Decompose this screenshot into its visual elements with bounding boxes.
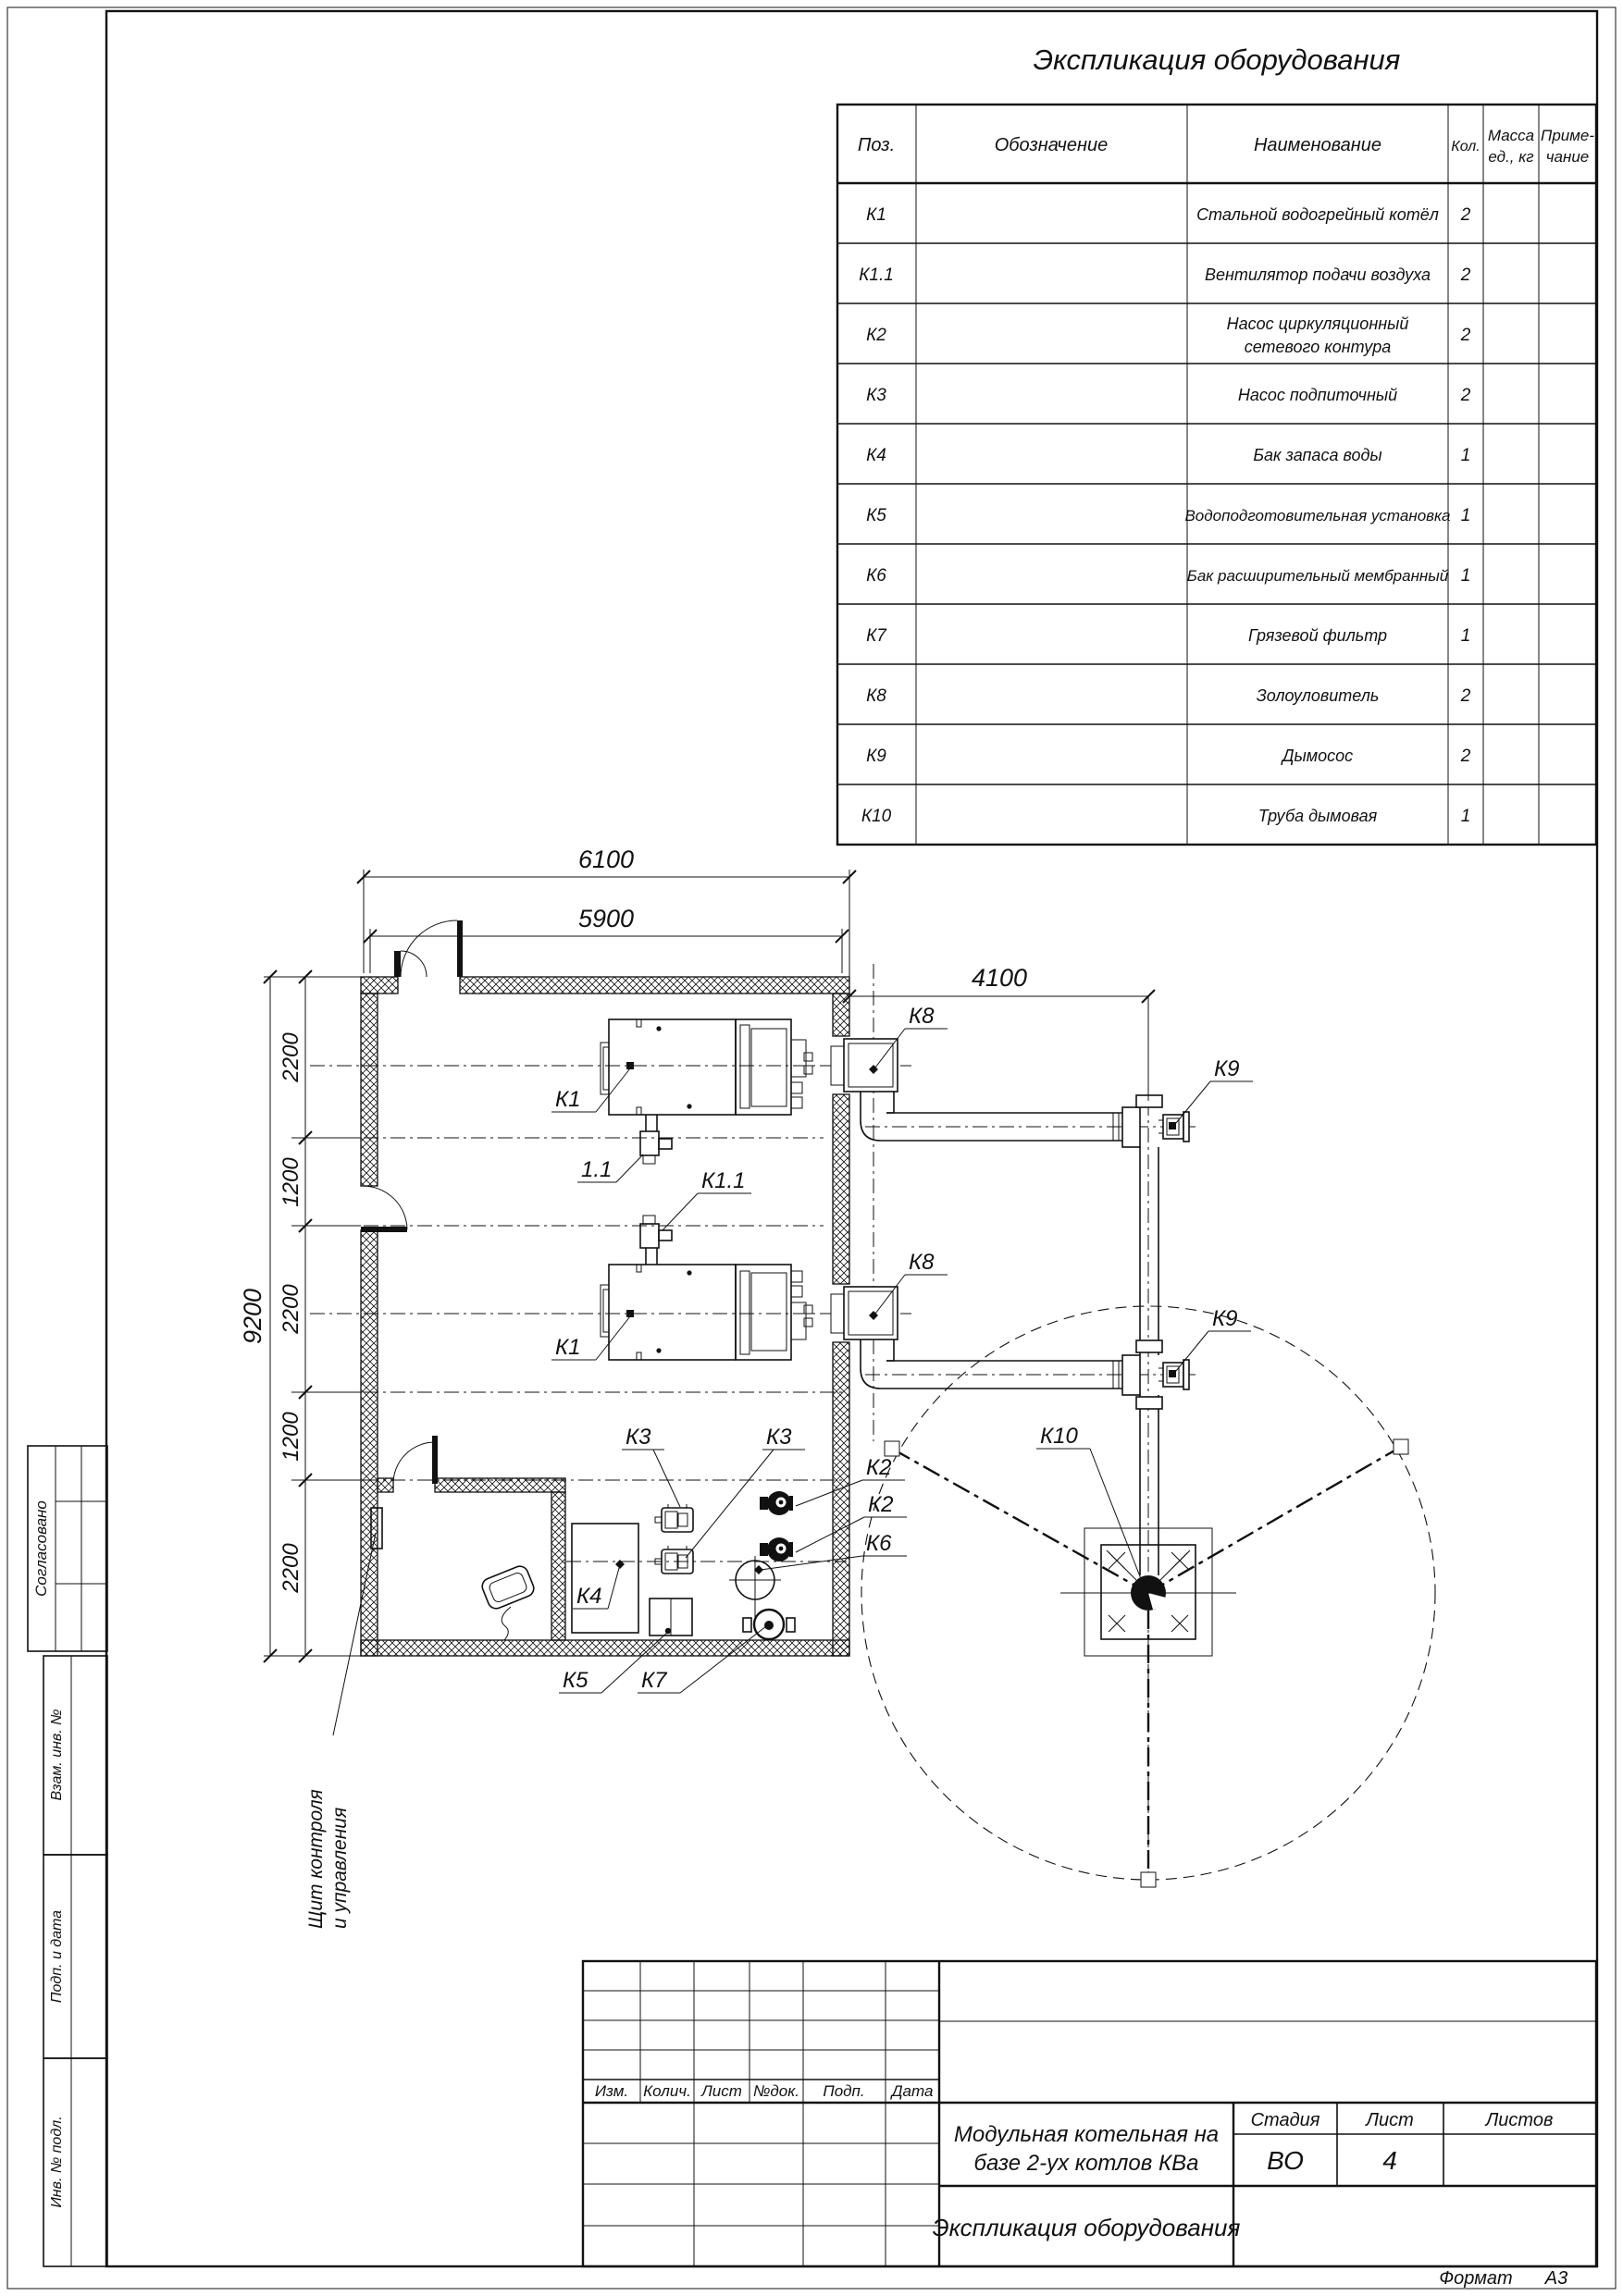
col-mass-2: ед., кг bbox=[1488, 148, 1533, 166]
row-qty: 1 bbox=[1461, 446, 1471, 465]
rev-col-ndok: №док. bbox=[753, 2082, 799, 2100]
equipment-table-title: Экспликация оборудования bbox=[1034, 43, 1401, 76]
labels: К1 К1 1.1 К1.1 К8 К8 bbox=[305, 1004, 1253, 1929]
vertical-flue-duct bbox=[1136, 1095, 1162, 1575]
label-k7: К7 bbox=[638, 1626, 766, 1693]
col-qty: Кол. bbox=[1451, 139, 1480, 154]
label-k4: К4 bbox=[573, 1560, 625, 1609]
rev-col-izm: Изм. bbox=[595, 2082, 628, 2100]
sheet-label: Лист bbox=[1364, 2110, 1414, 2130]
col-mass-1: Масса bbox=[1488, 127, 1534, 144]
sheet-value: 4 bbox=[1382, 2146, 1397, 2175]
pump-k2-1 bbox=[760, 1491, 793, 1515]
label-k1-2: К1 bbox=[551, 1310, 634, 1360]
row-qty: 2 bbox=[1460, 686, 1471, 706]
col-note-2: чание bbox=[1546, 148, 1590, 166]
label-text: К7 bbox=[641, 1668, 668, 1693]
row-qty: 1 bbox=[1461, 506, 1471, 525]
col-designation: Обозначение bbox=[995, 135, 1109, 155]
dim-5900: 5900 bbox=[578, 905, 634, 932]
label-text: К10 bbox=[1040, 1424, 1078, 1449]
dim-4100: 4100 bbox=[972, 964, 1027, 992]
label-text: К2 bbox=[866, 1455, 892, 1480]
equipment-table-header: Поз. Обозначение Наименование Кол. Масса… bbox=[858, 127, 1594, 166]
floor-plan: 6100 5900 4100 9200 2200 1200 2200 1200 … bbox=[239, 846, 1435, 1929]
row-qty: 2 bbox=[1460, 326, 1471, 345]
row-qty: 1 bbox=[1461, 807, 1471, 826]
row-name: Золоуловитель bbox=[1257, 686, 1380, 705]
label-text: К3 bbox=[766, 1425, 792, 1450]
axes bbox=[310, 964, 1236, 1872]
label-k1-1-fan: К1.1 bbox=[663, 1168, 751, 1230]
label-k3-1: К3 bbox=[622, 1425, 680, 1507]
label-k3-2: К3 bbox=[686, 1425, 805, 1558]
stamp-inv-label: Инв. № подл. bbox=[49, 2116, 65, 2207]
dim-9200: 9200 bbox=[239, 1289, 266, 1344]
row-name: Вентилятор подачи воздуха bbox=[1205, 265, 1431, 284]
row-pos: К8 bbox=[866, 686, 886, 706]
row-name: Дымосос bbox=[1281, 747, 1353, 765]
expansion-tank-k6 bbox=[729, 1556, 781, 1617]
sink bbox=[480, 1563, 537, 1611]
label-text: К8 bbox=[909, 1004, 935, 1029]
pump-k3-1 bbox=[655, 1504, 693, 1532]
label-text: 1.1 bbox=[581, 1157, 612, 1182]
row-qty: 2 bbox=[1460, 747, 1471, 766]
row-pos: К1 bbox=[866, 205, 886, 225]
dim-2200-3: 2200 bbox=[279, 1543, 304, 1594]
col-note-1: Приме- bbox=[1541, 127, 1594, 144]
row-qty: 2 bbox=[1460, 265, 1471, 285]
doc-title: Экспликация оборудования bbox=[933, 2214, 1241, 2241]
format-label: Формат bbox=[1439, 2268, 1512, 2289]
stamp-zam-label: Взам. инв. № bbox=[49, 1710, 65, 1801]
row-name: Насос циркуляционный bbox=[1227, 315, 1409, 333]
pump-k2-2 bbox=[760, 1537, 793, 1562]
rev-col-podp: Подп. bbox=[823, 2082, 864, 2100]
label-text: К8 bbox=[909, 1250, 935, 1275]
row-pos: К1.1 bbox=[859, 265, 894, 285]
row-name: Бак расширительный мембранный bbox=[1187, 567, 1449, 585]
label-text: К4 bbox=[576, 1584, 602, 1609]
row-pos: К5 bbox=[866, 506, 886, 525]
dim-2200-2: 2200 bbox=[279, 1284, 304, 1335]
dirt-filter-k7 bbox=[743, 1610, 795, 1639]
row-qty: 2 bbox=[1460, 205, 1471, 225]
project-name-line2: базе 2-ух котлов КВа bbox=[974, 2151, 1199, 2176]
format-value: А3 bbox=[1544, 2268, 1567, 2289]
rev-col-list: Лист bbox=[700, 2082, 742, 2100]
stamp-agreed-label: Согласовано bbox=[32, 1500, 50, 1597]
sheets-label: Листов bbox=[1484, 2110, 1554, 2130]
stamp-podp-label: Подп. и дата bbox=[49, 1910, 65, 2003]
rev-col-kol: Колич. bbox=[643, 2082, 691, 2100]
row-name: Насос подпиточный bbox=[1238, 386, 1397, 404]
label-text: Щит контроля bbox=[305, 1789, 327, 1929]
water-tank-k4 bbox=[572, 1524, 638, 1633]
dim-1200-1: 1200 bbox=[279, 1157, 304, 1207]
row-pos: К10 bbox=[861, 807, 892, 826]
flue-2 bbox=[831, 1287, 1189, 1395]
row-name-2: сетевого контура bbox=[1245, 338, 1392, 356]
col-pos: Поз. bbox=[858, 135, 895, 155]
equipment-table-rows: К1 Стальной водогрейный котёл 2 К1.1 Вен… bbox=[859, 205, 1471, 826]
pump-k3-2 bbox=[655, 1546, 693, 1574]
left-stamps: Согласовано Взам. инв. № Подп. и дата Ин… bbox=[28, 1446, 107, 2266]
title-block: Изм. Колич. Лист №док. Подп. Дата Модуль… bbox=[583, 1961, 1596, 2289]
label-k10: К10 bbox=[1036, 1424, 1145, 1588]
sink-drain bbox=[502, 1607, 511, 1640]
row-pos: К9 bbox=[866, 747, 886, 766]
dim-6100: 6100 bbox=[578, 846, 634, 873]
row-qty: 1 bbox=[1461, 566, 1471, 586]
label-text: К1 bbox=[555, 1087, 581, 1112]
label-text: К9 bbox=[1214, 1056, 1240, 1081]
dim-1200-2: 1200 bbox=[279, 1412, 304, 1462]
row-name: Бак запаса воды bbox=[1253, 446, 1381, 464]
row-pos: К3 bbox=[866, 386, 886, 405]
equipment-table: Экспликация оборудования Поз. Обозначени… bbox=[837, 43, 1596, 845]
row-name: Грязевой фильтр bbox=[1248, 626, 1387, 645]
row-qty: 2 bbox=[1460, 386, 1471, 405]
dim-2200-1: 2200 bbox=[279, 1032, 304, 1083]
row-name: Стальной водогрейный котёл bbox=[1196, 205, 1439, 224]
row-pos: К7 bbox=[866, 626, 887, 646]
drawing-canvas: Согласовано Взам. инв. № Подп. и дата Ин… bbox=[0, 0, 1623, 2296]
stage-value: ВО bbox=[1267, 2146, 1304, 2175]
rev-col-data: Дата bbox=[890, 2082, 934, 2100]
pumps-and-tanks bbox=[371, 1491, 795, 1640]
row-name: Водоподготовительная установка bbox=[1184, 507, 1450, 525]
row-pos: К2 bbox=[866, 326, 886, 345]
row-pos: К4 bbox=[866, 446, 886, 465]
boiler-1 bbox=[601, 1019, 812, 1164]
label-text: К1 bbox=[555, 1335, 581, 1360]
project-name-line1: Модульная котельная на bbox=[954, 2122, 1219, 2147]
col-name: Наименование bbox=[1254, 135, 1381, 155]
boiler-2 bbox=[601, 1216, 812, 1360]
drawing-sheet: Согласовано Взам. инв. № Подп. и дата Ин… bbox=[0, 0, 1623, 2296]
row-qty: 1 bbox=[1461, 626, 1471, 646]
label-text: К3 bbox=[626, 1425, 651, 1450]
label-text: К2 bbox=[868, 1492, 894, 1517]
label-text: и управления bbox=[329, 1808, 351, 1929]
stage-label: Стадия bbox=[1251, 2110, 1320, 2130]
label-text: К1.1 bbox=[701, 1168, 746, 1193]
label-text: К5 bbox=[563, 1668, 588, 1693]
label-k1-1: К1 bbox=[551, 1062, 634, 1112]
label-fan-1-1: 1.1 bbox=[577, 1154, 643, 1182]
label-text: К9 bbox=[1212, 1306, 1238, 1331]
row-name: Труба дымовая bbox=[1258, 807, 1378, 825]
label-text: К6 bbox=[866, 1531, 892, 1556]
row-pos: К6 bbox=[866, 566, 886, 586]
